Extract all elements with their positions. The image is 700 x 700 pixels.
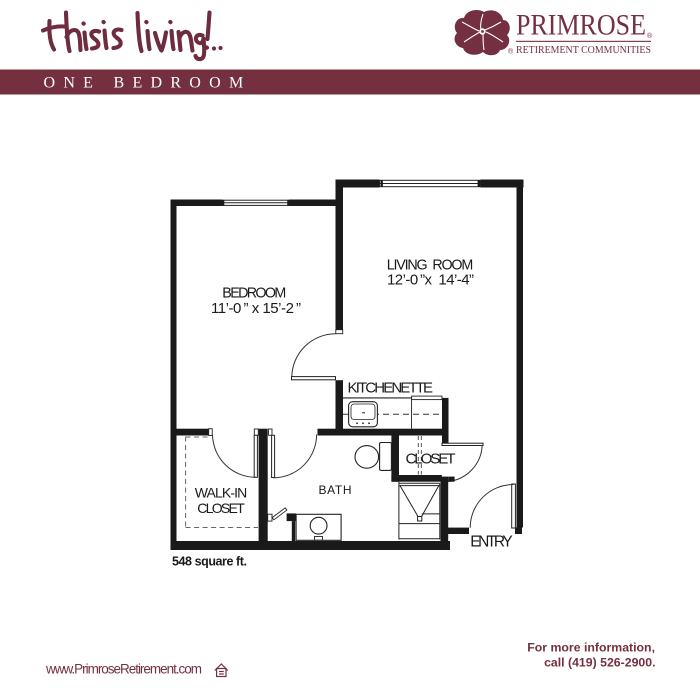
svg-text:WALK-IN: WALK-IN: [195, 484, 248, 500]
svg-text:www.PrimroseRetirement.com: www.PrimroseRetirement.com: [45, 662, 202, 677]
svg-text:ONE BEDROOM: ONE BEDROOM: [44, 75, 252, 92]
svg-text:BATH: BATH: [319, 483, 352, 497]
svg-text:548 square ft.: 548 square ft.: [172, 555, 247, 569]
svg-text:call (419) 526-2900.: call (419) 526-2900.: [544, 656, 655, 670]
svg-text:KITCHENETTE: KITCHENETTE: [348, 380, 434, 397]
svg-text:CLOSET: CLOSET: [197, 500, 245, 516]
svg-text:CLOSET: CLOSET: [406, 450, 456, 467]
svg-text:RETIREMENT COMMUNITIES: RETIREMENT COMMUNITIES: [516, 44, 651, 56]
svg-text:ENTRY: ENTRY: [470, 534, 513, 551]
svg-text:11’-0 ” x 15’-2 ”: 11’-0 ” x 15’-2 ”: [211, 300, 301, 317]
svg-text:®: ®: [508, 48, 514, 56]
svg-text:PRIMROSE: PRIMROSE: [516, 9, 646, 42]
svg-text:For more information,: For more information,: [527, 641, 655, 655]
svg-text:12’-0 ”x 14’-4”: 12’-0 ”x 14’-4”: [387, 272, 474, 289]
svg-text:®: ®: [647, 32, 653, 40]
